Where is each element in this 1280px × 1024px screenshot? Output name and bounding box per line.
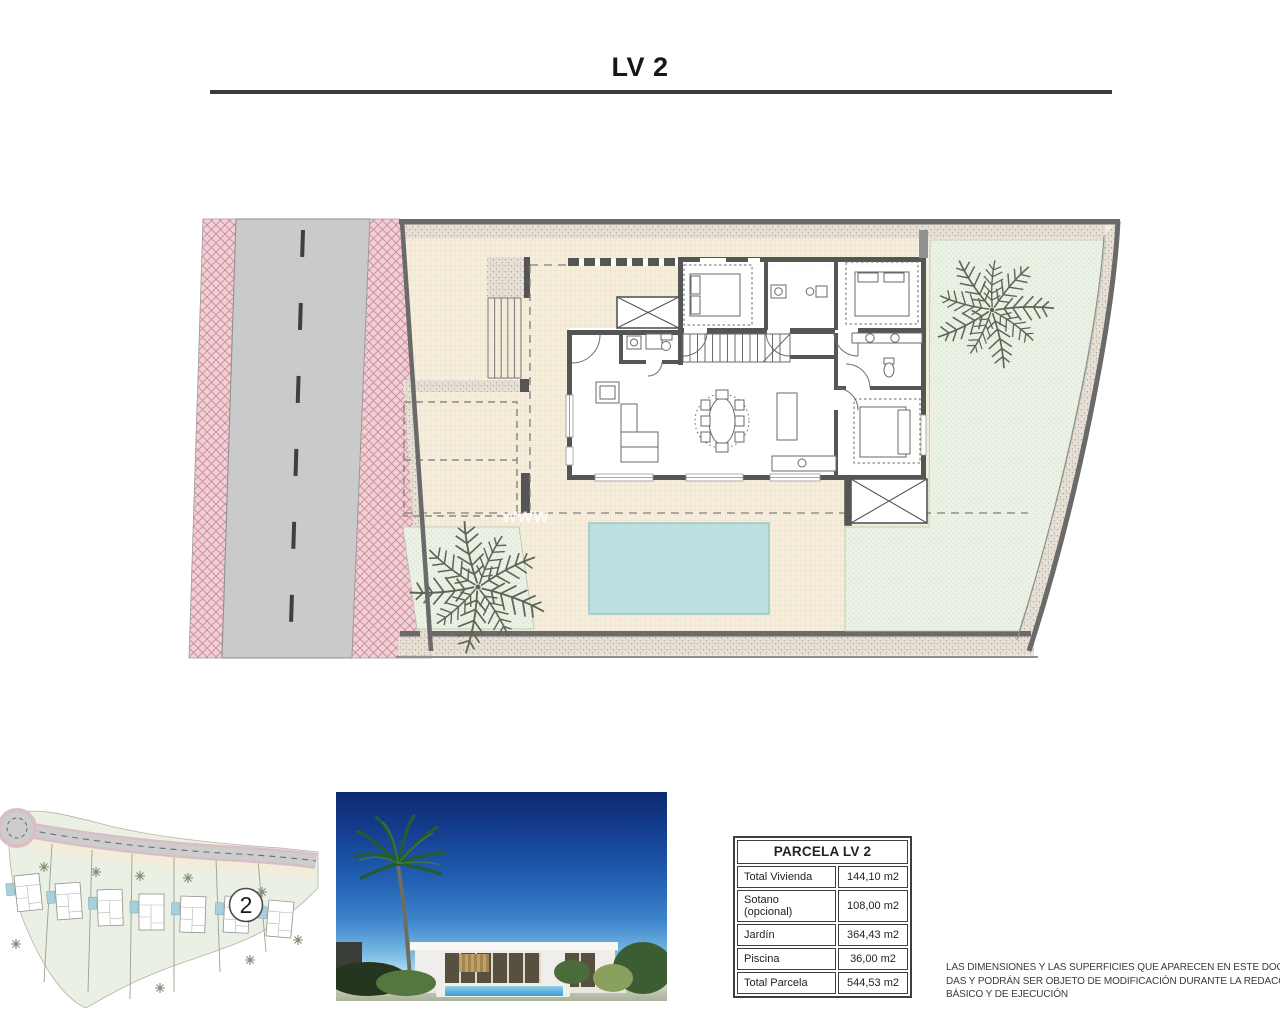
street: [189, 219, 431, 658]
planter: [487, 257, 528, 298]
plan-sheet-page: { "title": "LV 2", "plan": { "watermark"…: [0, 0, 1280, 1024]
parcel-table-header: PARCELA LV 2: [737, 840, 908, 864]
row-value: 36,00 m2: [838, 948, 908, 970]
disclaimer-line: BÁSICO Y DE EJECUCIÓN: [946, 988, 1280, 1002]
watermark: www: [501, 506, 549, 527]
page-title: LV 2: [0, 52, 1280, 83]
table-row: Jardín 364,43 m2: [737, 924, 908, 946]
table-row: Piscina 36,00 m2: [737, 948, 908, 970]
table-row: Total Vivienda 144,10 m2: [737, 866, 908, 888]
row-value: 364,43 m2: [838, 924, 908, 946]
disclaimer: LAS DIMENSIONES Y LAS SUPERFICIES QUE AP…: [946, 961, 1280, 1002]
bush: [554, 960, 590, 984]
site-overview-map: 2: [0, 792, 320, 1020]
disclaimer-line: LAS DIMENSIONES Y LAS SUPERFICIES QUE AP…: [946, 961, 1280, 975]
row-value: 544,53 m2: [838, 972, 908, 994]
row-label: Jardín: [737, 924, 836, 946]
palm-tree-photo: [346, 810, 456, 980]
row-label: Sotano (opcional): [737, 890, 836, 922]
table-row: Total Parcela 544,53 m2: [737, 972, 908, 994]
row-value: 144,10 m2: [838, 866, 908, 888]
row-label: Total Parcela: [737, 972, 836, 994]
stairs: [683, 334, 790, 362]
side-gate: [919, 230, 928, 258]
parcel-table: PARCELA LV 2 Total Vivienda 144,10 m2 So…: [733, 836, 912, 998]
courtyard-fence: [568, 258, 675, 266]
table-row: Sotano (opcional) 108,00 m2: [737, 890, 908, 922]
grass: [593, 964, 633, 992]
pool: [589, 523, 769, 614]
villa-render-photo: [336, 792, 667, 1001]
parcel-badge: 2: [230, 889, 263, 922]
row-label: Total Vivienda: [737, 866, 836, 888]
parcel-badge-number: 2: [240, 892, 253, 918]
road: [222, 219, 370, 658]
row-label: Piscina: [737, 948, 836, 970]
wood-slats: [459, 954, 489, 972]
site-plan: www: [180, 190, 1150, 670]
pool: [444, 985, 564, 997]
bush: [376, 970, 436, 996]
title-rule: [210, 90, 1112, 94]
disclaimer-line: DAS Y PODRÁN SER OBJETO DE MODIFICACIÓN …: [946, 975, 1280, 989]
row-value: 108,00 m2: [838, 890, 908, 922]
